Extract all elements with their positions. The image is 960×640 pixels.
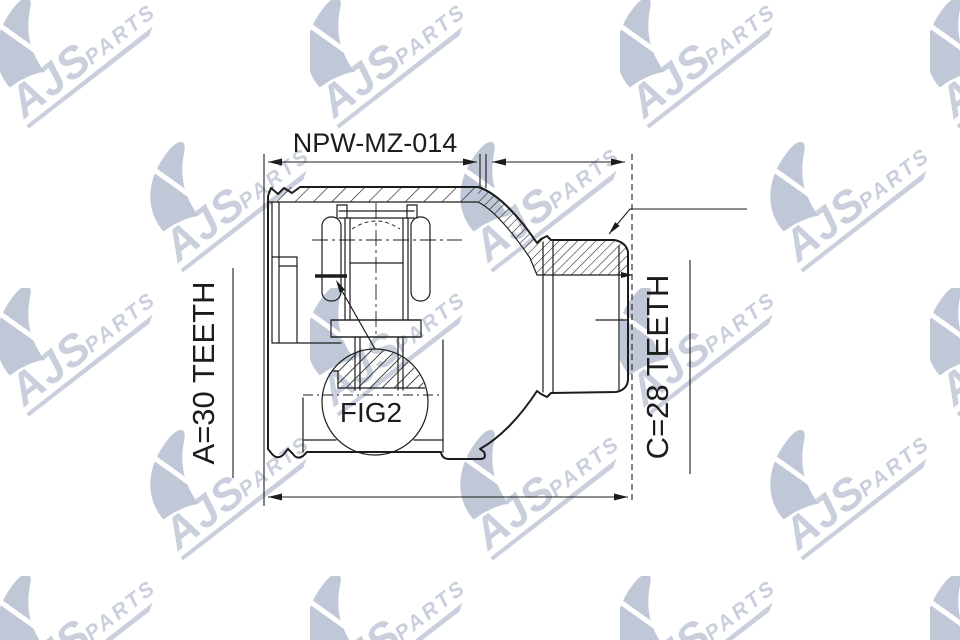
dimension-a-label: A=30 TEETH xyxy=(186,282,221,465)
housing-top-wall-hatch xyxy=(268,187,478,202)
dimension-c-label: C=28 TEETH xyxy=(640,275,675,460)
part-number-label: NPW-MZ-014 xyxy=(293,128,458,158)
cv-joint-technical-drawing: AJS PARTS xyxy=(0,0,960,640)
catalog-image: AJS PARTS xyxy=(0,0,960,640)
fig2-label: FIG2 xyxy=(340,397,402,428)
watermark-layer xyxy=(0,0,960,640)
